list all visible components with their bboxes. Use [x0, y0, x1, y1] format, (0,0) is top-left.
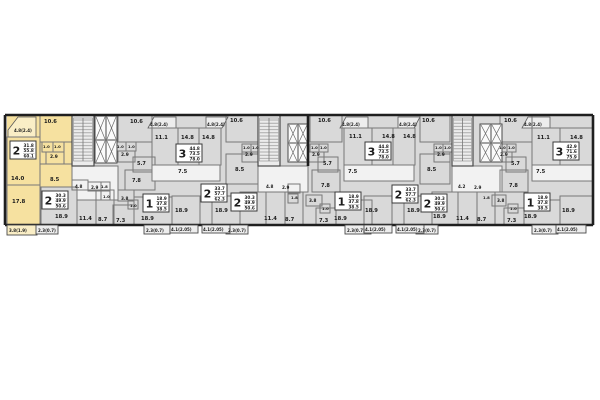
- room-area-label: 2.3(0.7): [534, 228, 552, 233]
- room-area-label: 4.2: [458, 184, 466, 189]
- room-area-label: 4.1(2.05): [365, 227, 386, 232]
- room-area-label: 11.1: [155, 135, 168, 141]
- room-area-label: 4.1(2.05): [557, 227, 578, 232]
- apartment-area-value: 60.1: [24, 153, 34, 158]
- room-area-label: 4.1(2.05): [203, 227, 224, 232]
- room-area-label: 1.0: [510, 206, 517, 211]
- room-area-label: 3.8: [497, 198, 505, 203]
- room-area-label: 2.9: [121, 152, 129, 158]
- apartment-rooms-count: 3: [556, 146, 564, 159]
- apartment-rooms-count: 2: [45, 195, 53, 208]
- room-area-label: 18.9: [433, 214, 446, 220]
- room-area-label: 4.1(2.05): [171, 227, 192, 232]
- room-area-label: 18.9: [524, 214, 537, 220]
- room-area-label: 1.8: [101, 184, 108, 189]
- room-area-label: 11.1: [349, 134, 362, 140]
- apartment-rooms-count: 1: [527, 197, 535, 210]
- room-area-label: 11.4: [456, 216, 469, 222]
- room-area-label: 1.0: [508, 145, 515, 150]
- room-area-label: 2.3(0.7): [146, 228, 164, 233]
- room-area-label: 10.6: [318, 118, 331, 124]
- apartment-badge[interactable]: 344.873.578.0: [365, 142, 391, 160]
- apartment-badge[interactable]: 233.757.762.3: [201, 184, 227, 202]
- room-area-label: 1.0: [43, 144, 50, 149]
- apartment-area-value: 50.6: [245, 205, 255, 210]
- apartment-rooms-count: 3: [179, 148, 187, 161]
- room-area-label: 8.5: [50, 177, 60, 183]
- room-area-label: 18.9: [334, 216, 347, 222]
- apartment-rooms-count: 1: [146, 198, 154, 211]
- apartment-rooms-count: 2: [234, 197, 242, 210]
- room-area-label: 1.0: [130, 203, 137, 208]
- room-area-label: 10.6: [130, 119, 143, 125]
- room-area-label: 10.6: [230, 118, 243, 124]
- room-area-label: 7.5: [348, 169, 358, 175]
- room-area-label: 10.6: [504, 118, 517, 124]
- room-area-label: 1.0: [435, 145, 442, 150]
- room-area-label: 8.7: [98, 217, 108, 223]
- room-area-label: 18.9: [175, 208, 188, 214]
- room-area-label: 10.6: [422, 118, 435, 124]
- room-area-label: 8.5: [427, 167, 437, 173]
- room-area-label: 2.3(0.7): [418, 228, 436, 233]
- room-area-label: 7.8: [132, 178, 141, 184]
- room-area-label: 4.1(2.05): [397, 227, 418, 232]
- room: [72, 166, 118, 200]
- room-area-label: 2.9: [500, 152, 508, 158]
- room-area-label: 1.8: [291, 195, 298, 200]
- room-area-label: 10.6: [44, 119, 57, 125]
- room-area-label: 2.9: [282, 185, 290, 190]
- room-area-label: 2.3(0.7): [347, 228, 365, 233]
- apartment-area-value: 62.3: [215, 196, 225, 201]
- room-area-label: 18.9: [407, 208, 420, 214]
- room-area-label: 4.8: [266, 184, 274, 189]
- room-area-label: 17.8: [12, 199, 26, 205]
- apartment-rooms-count: 3: [368, 146, 376, 159]
- apartment-badge[interactable]: 230.349.950.6: [231, 193, 257, 211]
- room-area-label: 14.8: [570, 135, 583, 141]
- room-area-label: 2.3(0.7): [228, 228, 246, 233]
- room-area-label: 2.9: [437, 152, 445, 158]
- apartment-area-value: 38.5: [538, 205, 548, 210]
- room-area-label: 8.7: [477, 217, 487, 223]
- room-area-label: 1.0: [444, 145, 451, 150]
- apartment-area-value: 62.3: [406, 197, 416, 202]
- apartment-rooms-count: 2: [424, 198, 432, 211]
- room-area-label: 11.4: [264, 216, 277, 222]
- room-area-label: 1.0: [320, 145, 327, 150]
- room-area-label: 1.0: [54, 144, 61, 149]
- apartment-badge[interactable]: 233.757.762.3: [392, 185, 418, 203]
- room-area-label: 7.3: [319, 218, 329, 224]
- apartment-badge[interactable]: 344.873.578.0: [176, 144, 202, 162]
- room-area-label: 1.0: [117, 144, 124, 149]
- room-area-label: 2.9: [91, 185, 99, 190]
- apartment-badge[interactable]: 118.937.838.5: [524, 193, 550, 211]
- room-area-label: 7.3: [116, 218, 126, 224]
- room-area-label: 1.0: [103, 194, 110, 199]
- room-area-label: 4.8(2.4): [14, 128, 32, 133]
- room-area-label: 4.8(2.4): [150, 122, 168, 127]
- room-area-label: 5.7: [511, 161, 520, 167]
- room-area-label: 18.9: [55, 214, 68, 220]
- room-area-label: 11.1: [537, 135, 550, 141]
- room-area-label: 7.8: [321, 183, 330, 189]
- room-area-label: 18.9: [365, 208, 378, 214]
- room-area-label: 18.9: [562, 208, 575, 214]
- room-area-label: 3.8(1.9): [9, 228, 27, 233]
- apartment-area-value: 78.0: [379, 154, 389, 159]
- floor-plan: 10.610.610.610.610.610.614.017.811.111.1…: [0, 0, 600, 400]
- room-area-label: 18.9: [141, 216, 154, 222]
- room-area-label: 2.3(0.7): [38, 228, 56, 233]
- room-area-label: 4.8(2.4): [524, 122, 542, 127]
- apartment-rooms-count: 1: [338, 196, 346, 209]
- apartment-rooms-count: 2: [204, 188, 212, 201]
- apartment-area-value: 75.9: [567, 154, 577, 159]
- room-area-label: 2.9: [50, 154, 58, 160]
- room-area-label: 3.8: [309, 198, 317, 203]
- room-area-label: 4.8(2.4): [399, 122, 417, 127]
- room-area-label: 14.8: [181, 135, 194, 141]
- room-area-label: 1.8: [483, 195, 490, 200]
- apartment-area-value: 78.0: [190, 156, 200, 161]
- apartment-rooms-count: 2: [13, 145, 21, 158]
- room-area-label: 2.9: [474, 185, 482, 190]
- room-area-label: 8.7: [285, 217, 295, 223]
- apartment-badge[interactable]: 230.349.950.6: [421, 194, 447, 212]
- room-area-label: 14.8: [202, 135, 215, 141]
- apartment-area-value: 38.5: [157, 206, 167, 211]
- room-area-label: 7.3: [507, 218, 517, 224]
- room-area-label: 1.0: [322, 206, 329, 211]
- room-area-label: 5.7: [137, 161, 146, 167]
- room-area-label: 1.0: [499, 145, 506, 150]
- room-area-label: 2.9: [245, 152, 253, 158]
- room-area-label: 18.9: [215, 208, 228, 214]
- apartment-badge[interactable]: 230.349.950.6: [42, 191, 68, 209]
- room-area-label: 1.0: [128, 144, 135, 149]
- room-area-label: 4.8(2.4): [342, 122, 360, 127]
- room-area-label: 4.8(2.4): [207, 122, 225, 127]
- apartment-area-value: 50.6: [56, 203, 66, 208]
- floor-plan-page: 10.610.610.610.610.610.614.017.811.111.1…: [0, 0, 600, 400]
- room-area-label: 7.5: [536, 169, 546, 175]
- apartment-area-value: 50.6: [435, 206, 445, 211]
- room-area-label: 4.8: [75, 184, 83, 189]
- room-area-label: 14.8: [382, 134, 395, 140]
- room-area-label: 3.8: [121, 196, 129, 201]
- apartment-badge[interactable]: 118.937.838.5: [143, 194, 169, 212]
- room-area-label: 1.0: [252, 145, 259, 150]
- room-area-label: 14.8: [403, 134, 416, 140]
- apartment-badge[interactable]: 342.971.675.9: [553, 142, 579, 160]
- room-area-label: 1.0: [243, 145, 250, 150]
- room-area-label: 1.0: [311, 145, 318, 150]
- room-area-label: 5.7: [323, 161, 332, 167]
- room-area-label: 2.9: [312, 152, 320, 158]
- apartment-badge[interactable]: 231.855.860.1: [10, 141, 36, 159]
- apartment-badge[interactable]: 118.937.838.5: [335, 192, 361, 210]
- room-area-label: 14.0: [11, 176, 25, 182]
- room-area-label: 7.8: [509, 183, 518, 189]
- apartment-rooms-count: 2: [395, 189, 403, 202]
- room-area-label: 11.4: [79, 216, 92, 222]
- apartment-area-value: 38.5: [349, 204, 359, 209]
- room-area-label: 8.5: [235, 167, 245, 173]
- room-area-label: 7.5: [178, 169, 188, 175]
